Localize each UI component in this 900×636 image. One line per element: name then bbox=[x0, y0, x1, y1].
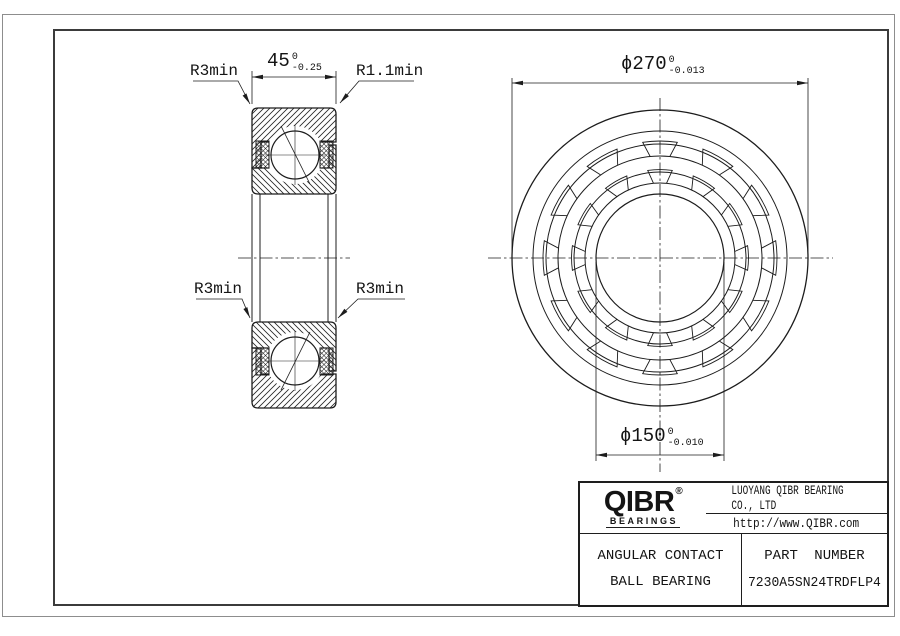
width-dimension-text: 45 0 -0.25 bbox=[267, 52, 322, 74]
arrowhead bbox=[252, 75, 263, 79]
company-name: LUOYANG QIBR BEARING CO., LTD bbox=[731, 483, 861, 513]
product-line1: ANGULAR CONTACT bbox=[597, 544, 723, 570]
company-website: http://www.QIBR.com bbox=[733, 516, 859, 531]
arrowhead bbox=[243, 307, 250, 318]
fillet-label-bottom-right: R3min bbox=[356, 281, 404, 297]
section-view bbox=[193, 71, 414, 408]
product-line2: BALL BEARING bbox=[610, 570, 711, 596]
arrowhead bbox=[596, 453, 607, 457]
bore-dimension-text: ϕ150 0 -0.010 bbox=[620, 427, 704, 449]
cage-pocket bbox=[743, 300, 769, 331]
width-value: 45 bbox=[267, 52, 290, 71]
arrowhead bbox=[797, 81, 808, 85]
width-dimension-lines bbox=[252, 71, 336, 104]
cage-section-bottom-right bbox=[320, 348, 333, 375]
cage-section-top-left bbox=[256, 141, 269, 168]
front-view bbox=[488, 78, 833, 472]
cage-pocket bbox=[587, 149, 618, 175]
title-block-header-row: QIBR® BEARINGS LUOYANG QIBR BEARING CO.,… bbox=[580, 483, 887, 534]
company-name-row: LUOYANG QIBR BEARING CO., LTD bbox=[706, 483, 887, 514]
cage-pocket bbox=[743, 185, 769, 216]
brand-logo: QIBR® BEARINGS bbox=[580, 483, 706, 533]
drawing-sheet: { "drawing": { "labels": { "r_top_left":… bbox=[0, 0, 900, 636]
arrowhead bbox=[713, 453, 724, 457]
title-block: QIBR® BEARINGS LUOYANG QIBR BEARING CO.,… bbox=[578, 481, 889, 607]
width-tolerance: 0 -0.25 bbox=[292, 52, 322, 74]
part-number-label: PART NUMBER bbox=[764, 543, 864, 570]
company-website-row: http://www.QIBR.com bbox=[706, 514, 887, 533]
registered-trademark-icon: ® bbox=[675, 488, 682, 497]
company-info-cell: LUOYANG QIBR BEARING CO., LTD http://www… bbox=[706, 483, 887, 533]
bore-value: ϕ150 bbox=[620, 427, 666, 446]
od-dimension-text: ϕ270 0 -0.013 bbox=[621, 55, 705, 77]
fillet-label-top-left: R3min bbox=[190, 63, 238, 79]
arrowhead bbox=[512, 81, 523, 85]
cage-pocket bbox=[702, 149, 733, 175]
part-number-cell: PART NUMBER 7230A5SN24TRDFLP4 bbox=[742, 534, 887, 605]
od-tolerance: 0 -0.013 bbox=[669, 55, 705, 77]
od-value: ϕ270 bbox=[621, 55, 667, 74]
arrowhead bbox=[325, 75, 336, 79]
bore-tolerance: 0 -0.010 bbox=[668, 427, 704, 449]
title-block-body-row: ANGULAR CONTACT BALL BEARING PART NUMBER… bbox=[580, 534, 887, 605]
cage-pocket bbox=[551, 300, 577, 331]
brand-wordmark: QIBR® bbox=[604, 490, 682, 515]
brand-name: QIBR bbox=[604, 490, 675, 515]
cage-section-bottom-left bbox=[256, 348, 269, 375]
product-description-cell: ANGULAR CONTACT BALL BEARING bbox=[580, 534, 742, 605]
brand-subtitle: BEARINGS bbox=[606, 515, 680, 528]
cage-pocket bbox=[587, 341, 618, 367]
arrowhead bbox=[243, 93, 250, 104]
fillet-label-top-right: R1.1min bbox=[356, 63, 423, 79]
cage-section-top-right bbox=[320, 141, 333, 168]
cage-pocket bbox=[702, 341, 733, 367]
cage-pocket bbox=[551, 185, 577, 216]
part-number-value: 7230A5SN24TRDFLP4 bbox=[743, 570, 886, 597]
fillet-label-bottom-left: R3min bbox=[194, 281, 242, 297]
